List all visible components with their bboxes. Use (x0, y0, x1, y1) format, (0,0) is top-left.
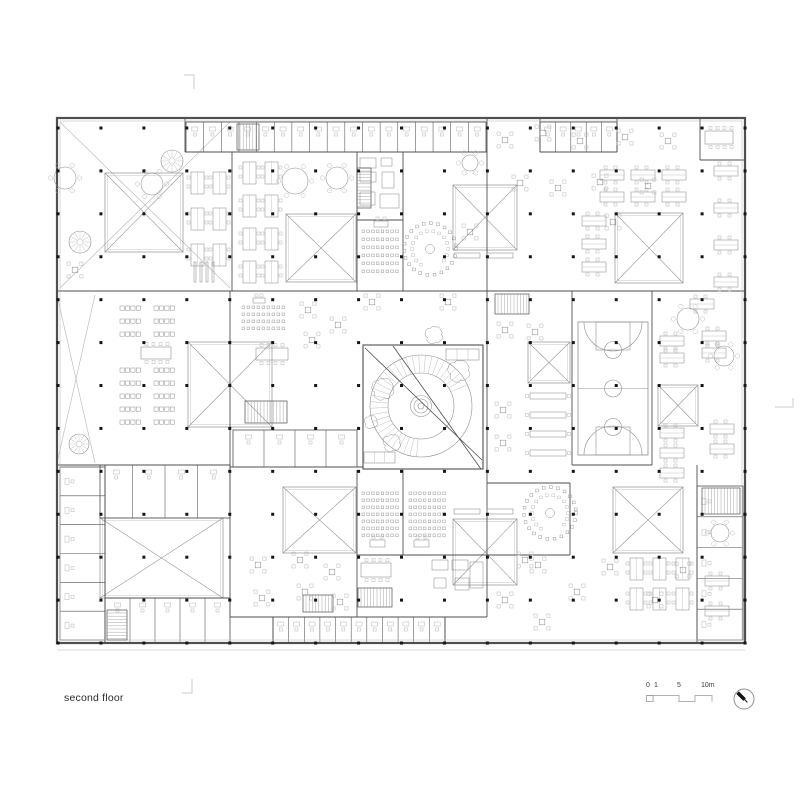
scale-tick-5: 5 (677, 682, 681, 689)
floor-plan-drawing (0, 0, 800, 800)
basketball-court (578, 322, 648, 455)
seminar-circles (403, 222, 578, 541)
atrium-benches (364, 349, 479, 463)
north-arrow-icon (732, 687, 756, 711)
outer-wall (57, 118, 745, 643)
drawing-sheet: second floor 0 1 5 10m (0, 0, 800, 800)
floor-label: second floor (64, 692, 124, 704)
atrium-spiral-ramp (365, 346, 482, 469)
scale-tick-10: 10m (701, 682, 715, 689)
skylight-crossed-squares (100, 173, 698, 598)
scale-bar: 0 1 5 10m (646, 682, 726, 708)
scale-tick-1: 1 (654, 682, 658, 689)
internal-walls (57, 118, 745, 643)
service-fixtures (360, 158, 483, 590)
scale-tick-0: 0 (646, 682, 650, 689)
classroom-seats (242, 217, 445, 547)
spiral-stairs (69, 150, 183, 454)
desk-clusters (120, 162, 738, 620)
scale-bar-graphic (646, 692, 718, 706)
stairs (107, 124, 740, 640)
